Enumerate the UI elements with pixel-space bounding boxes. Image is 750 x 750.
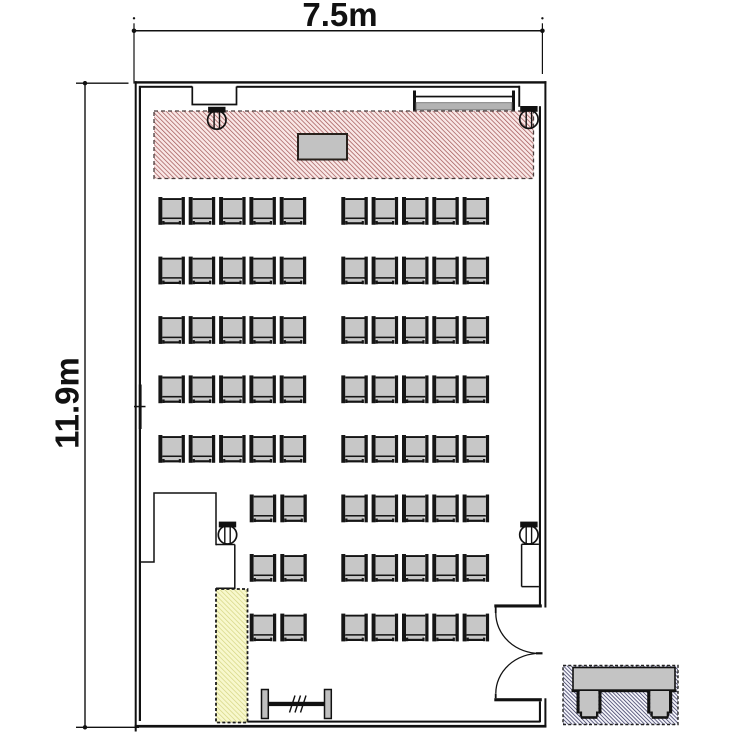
svg-text:7.5m: 7.5m [302,0,377,33]
svg-text:11.9m: 11.9m [49,357,86,449]
